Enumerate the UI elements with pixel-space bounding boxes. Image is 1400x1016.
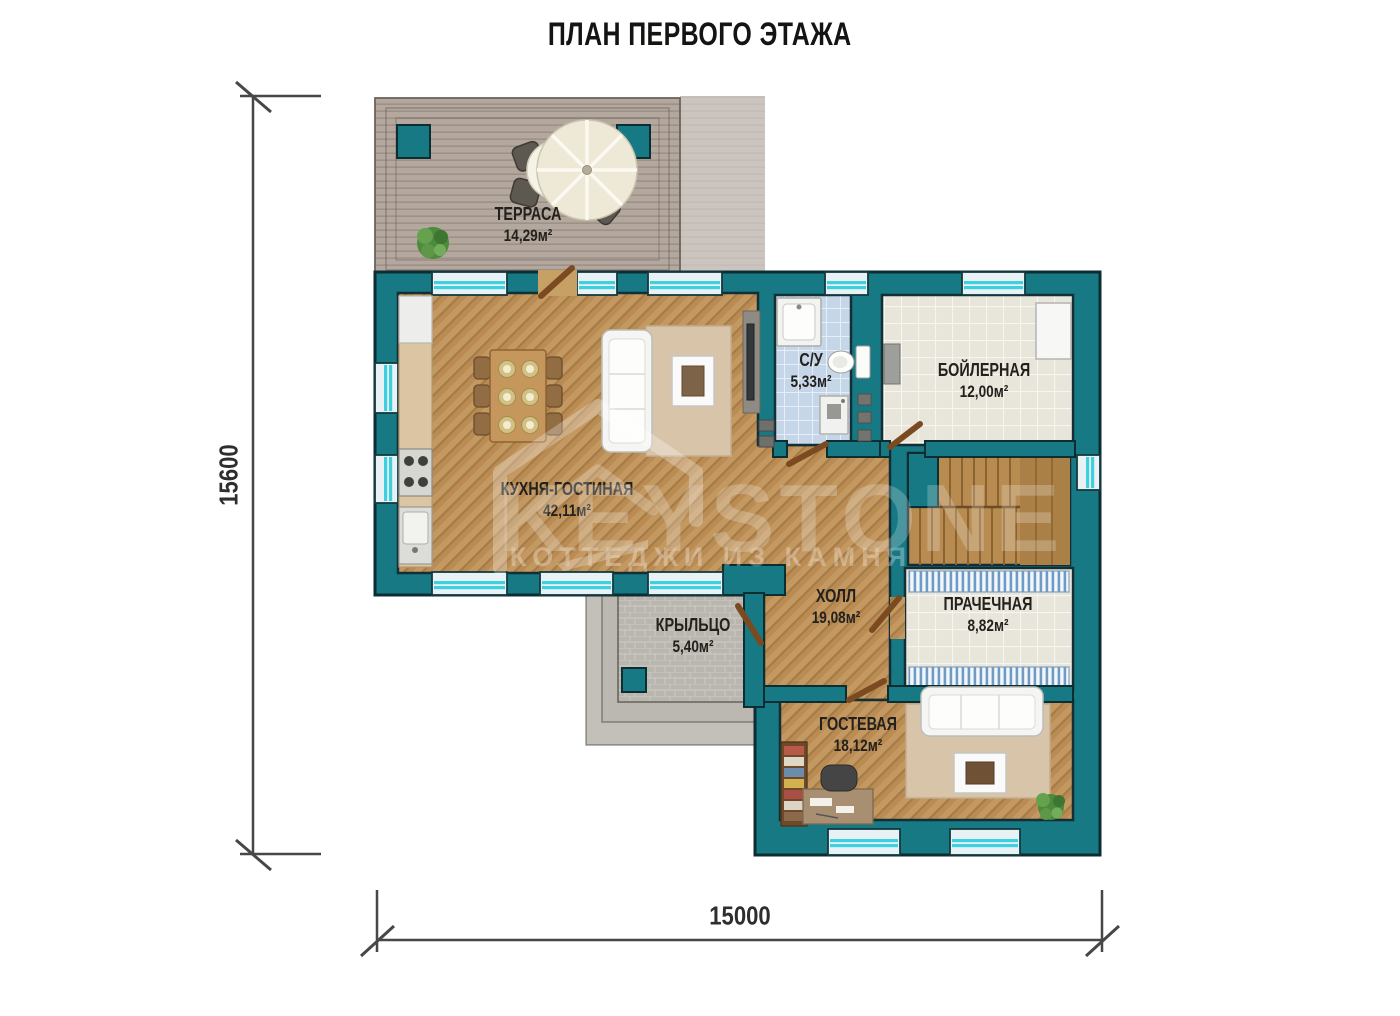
window: [375, 363, 398, 413]
laundry-label: ПРАЧЕЧНАЯ 8,82м²: [932, 594, 1043, 636]
dimension-height: 15600: [214, 444, 245, 505]
window: [577, 272, 617, 295]
kitchen-sink: [399, 507, 432, 564]
guest-sofa: [921, 687, 1043, 736]
dining-set: [474, 350, 562, 442]
window: [648, 272, 722, 295]
window: [962, 272, 1025, 295]
terrace-post: [397, 125, 430, 158]
terrace-label: ТЕРРАСА 14,29м²: [486, 204, 570, 246]
window: [828, 829, 900, 855]
window: [648, 572, 723, 595]
window: [432, 272, 507, 295]
guest-plant: [1036, 793, 1065, 820]
stair-landing: [1020, 453, 1070, 565]
desk: [803, 789, 873, 824]
desk-chair: [821, 765, 857, 791]
fridge: [399, 296, 432, 343]
dimension-width: 15000: [709, 901, 770, 932]
stove: [399, 449, 432, 496]
coffee-table: [672, 356, 714, 406]
staircase: [908, 453, 1070, 565]
guest-label: ГОСТЕВАЯ 18,12м²: [809, 714, 907, 756]
floorplan-stage: [0, 0, 1400, 1016]
page-title: ПЛАН ПЕРВОГО ЭТАЖА: [0, 16, 1400, 53]
window: [1077, 455, 1100, 490]
floorplan-drawing: [0, 0, 1400, 1016]
guest-coffee-table: [954, 753, 1006, 793]
water-heater: [884, 344, 900, 384]
kitchen-counter: [399, 296, 432, 567]
terrace: [375, 98, 680, 280]
boiler-unit: [1036, 303, 1071, 359]
window: [375, 455, 398, 503]
side-deck-shadow: [680, 96, 765, 274]
window: [950, 829, 1020, 855]
window: [432, 572, 507, 595]
window: [540, 572, 613, 595]
kitchen-living-label: КУХНЯ-ГОСТИНАЯ 42,11м²: [484, 479, 650, 521]
living-sofa: [602, 330, 652, 452]
porch-post: [622, 668, 646, 692]
hall-label: ХОЛЛ 19,08м²: [806, 586, 867, 628]
bathroom-sink: [777, 298, 821, 346]
porch-label: КРЫЛЬЦО 5,40м²: [646, 615, 739, 657]
hall-porch-wall: [744, 593, 764, 707]
boiler-label: БОЙЛЕРНАЯ 12,00м²: [926, 360, 1041, 402]
porch-corner-wall: [723, 565, 785, 595]
stair-wall-stub: [908, 453, 938, 507]
window: [825, 272, 868, 295]
tv-unit: [743, 311, 760, 413]
wall-panels: [858, 394, 871, 441]
bathroom-label: С/У 5,33м²: [785, 350, 836, 392]
washing-machine: [820, 396, 848, 434]
terrace-plant: [417, 227, 449, 259]
